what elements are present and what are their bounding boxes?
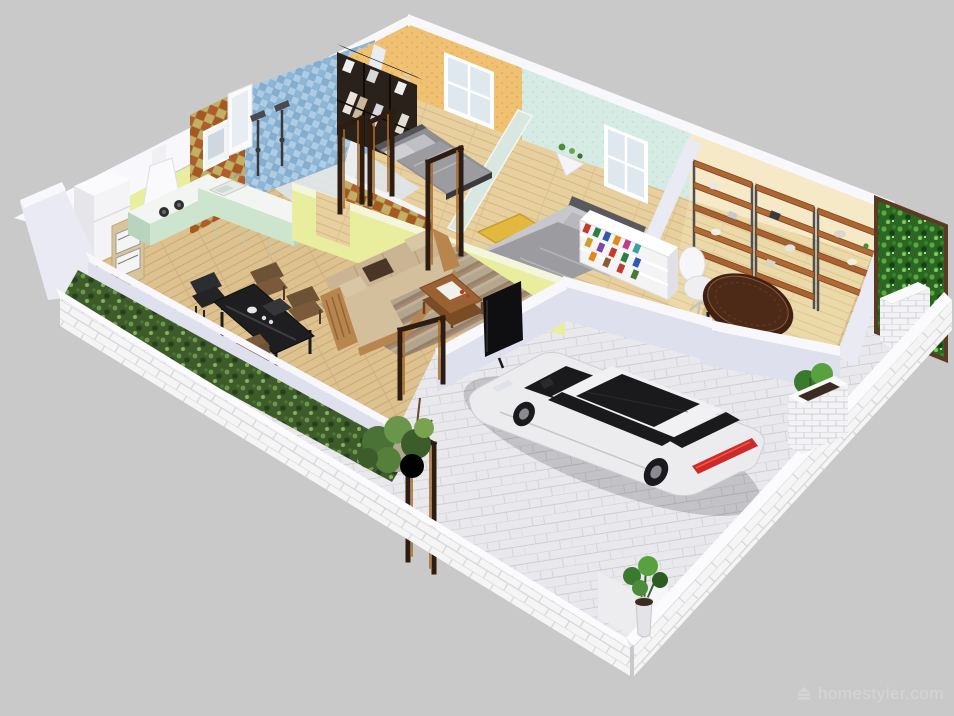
kitchen-wall-mirror xyxy=(228,84,252,156)
floorplan-canvas xyxy=(0,0,954,716)
watermark: homestyler.com xyxy=(796,684,944,704)
watermark-text: homestyler.com xyxy=(818,684,944,704)
floorplan-render: homestyler.com xyxy=(0,0,954,716)
homestyler-logo xyxy=(796,687,812,701)
